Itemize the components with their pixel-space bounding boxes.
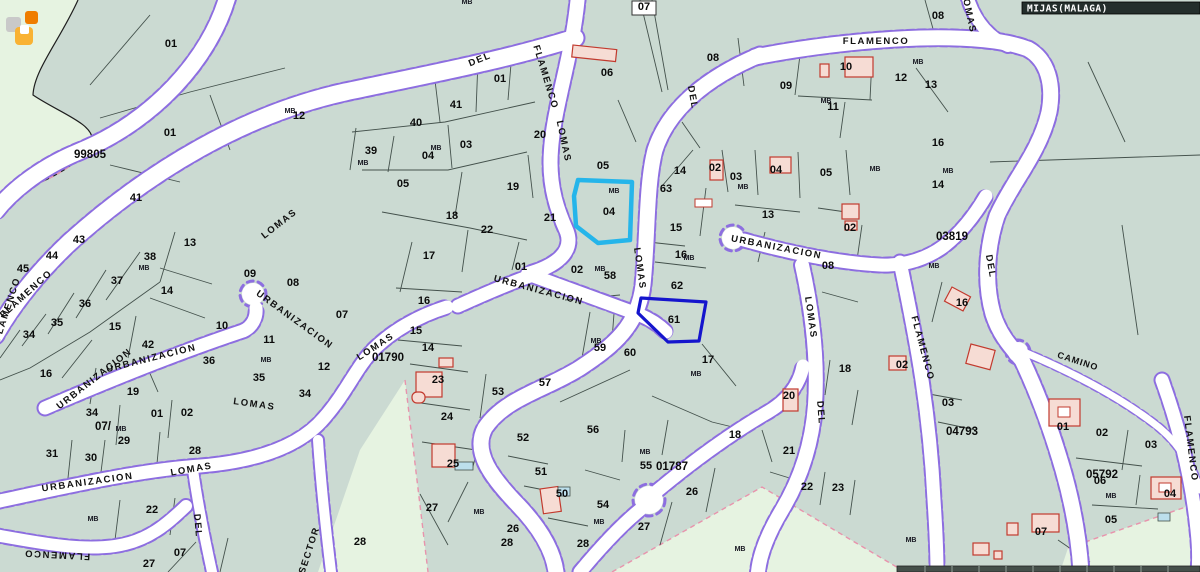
parcel-number: 41 (450, 99, 462, 111)
parcel-number: 02 (896, 359, 908, 371)
parcel-number: 26 (507, 523, 519, 535)
parcel-number: 27 (426, 502, 438, 514)
parcel-number: 22 (481, 224, 493, 236)
parcel-number: 36 (79, 298, 91, 310)
parcel-number: 44 (46, 250, 59, 262)
parcel-number: 34 (86, 407, 99, 419)
parcel-number: 28 (501, 537, 513, 549)
parcel-number: 01 (151, 408, 163, 420)
parcel-number: 15 (670, 222, 682, 234)
parcel-number: 18 (839, 363, 851, 375)
cadastral-map-canvas[interactable]: 0112014041390403052019182217162105040607… (0, 0, 1200, 572)
parcel-number: 16 (418, 295, 430, 307)
parcel-number: 63 (660, 183, 672, 195)
parcel-number: 61 (668, 314, 680, 326)
mb-label: MB (595, 266, 606, 273)
mb-label: MB (684, 255, 695, 262)
mb-label: MB (691, 371, 702, 378)
mb-label: MB (738, 184, 749, 191)
parcel-number: 01 (515, 261, 527, 273)
parcel-number: 37 (111, 275, 123, 287)
parcel-number: 39 (365, 145, 377, 157)
mb-label: MB (609, 188, 620, 195)
parcel-number: 27 (638, 521, 650, 533)
parcel-number: 07 (638, 1, 650, 13)
parcel-number: 17 (702, 354, 714, 366)
parcel-number: 16 (40, 368, 52, 380)
parcel-number: 35 (51, 317, 63, 329)
street-name: FLAMENCO (843, 36, 910, 47)
parcel-number: 45 (17, 263, 29, 275)
map-title-bar: MIJAS(MALAGA) (1022, 2, 1200, 15)
zone-code: 03819 (936, 231, 968, 243)
parcel-number: 11 (263, 334, 275, 346)
mb-label: MB (906, 537, 917, 544)
parcel-number: 02 (1096, 427, 1108, 439)
parcel-number: 58 (604, 270, 616, 282)
parcel-number: 23 (832, 482, 844, 494)
parcel-number: 21 (544, 212, 556, 224)
parcel-number: 35 (253, 372, 265, 384)
mb-label: MB (285, 108, 296, 115)
parcel-number: 15 (109, 321, 121, 333)
parcel-number: 51 (535, 466, 547, 478)
mb-label: MB (88, 516, 99, 523)
mb-label: MB (870, 166, 881, 173)
parcel-number: 03 (1145, 439, 1157, 451)
parcel-number: 13 (925, 79, 937, 91)
cul-de-sac (1008, 342, 1028, 362)
parcel-number: 14 (674, 165, 687, 177)
zone-code: 01787 (656, 461, 688, 473)
parcel-number: 07 (336, 309, 348, 321)
parcel-number: 22 (146, 504, 158, 516)
parcel-number: 50 (556, 488, 568, 500)
parcel-number: 08 (822, 260, 834, 272)
parcel-number: 56 (587, 424, 599, 436)
mb-label: MB (821, 98, 832, 105)
parcel-number: 21 (783, 445, 795, 457)
parcel-number: 19 (507, 181, 519, 193)
parcel-number: 02 (709, 162, 721, 174)
street-name: DEL (191, 513, 204, 538)
mb-label: MB (1106, 493, 1117, 500)
parcel-number: 01 (164, 127, 176, 139)
parcel-number: 16 (956, 297, 968, 309)
parcel-number: 34 (23, 329, 36, 341)
parcel-number: 25 (447, 458, 459, 470)
parcel-number: 04 (1164, 488, 1177, 500)
parcel-number: 13 (184, 237, 196, 249)
parcel-number: 14 (932, 179, 945, 191)
parcel-number: 41 (130, 192, 142, 204)
parcel-number: 17 (423, 250, 435, 262)
parcel-number: 60 (624, 347, 636, 359)
parcel-number: 28 (354, 536, 366, 548)
zone-code: 07/ (95, 421, 112, 433)
parcel-number: 28 (189, 445, 201, 457)
parcel-number: 12 (895, 72, 907, 84)
logo-orange-square (25, 11, 38, 24)
parcel-number: 23 (432, 374, 444, 386)
mb-label: MB (139, 265, 150, 272)
parcel-number: 12 (318, 361, 330, 373)
parcel-number: 04 (603, 206, 616, 218)
mb-label: MB (913, 59, 924, 66)
municipality-label: MIJAS(MALAGA) (1027, 4, 1108, 15)
parcel-number: 14 (161, 285, 174, 297)
parcel-number: 36 (203, 355, 215, 367)
parcel-number: 30 (85, 452, 97, 464)
mb-label: MB (591, 338, 602, 345)
zone-code: 04793 (946, 426, 978, 438)
parcel-number: 05 (1105, 514, 1117, 526)
parcel-number: 09 (780, 80, 792, 92)
parcel-number: 08 (707, 52, 719, 64)
parcel-number: 24 (441, 411, 454, 423)
parcel-number: 06 (601, 67, 613, 79)
parcel-number: 26 (686, 486, 698, 498)
parcel-number: 09 (244, 268, 256, 280)
parcel-number: 62 (671, 280, 683, 292)
parcel-number: 28 (577, 538, 589, 550)
parcel-number: 54 (597, 499, 610, 511)
parcel-number: 10 (840, 61, 852, 73)
parcel-number: 16 (932, 137, 944, 149)
parcel-number: 43 (73, 234, 85, 246)
parcel-number: 01 (1057, 421, 1069, 433)
mb-label: MB (943, 168, 954, 175)
parcel-number: 55 (640, 460, 652, 472)
mb-label: MB (929, 263, 940, 270)
parcel-number: 02 (844, 222, 856, 234)
mb-label: MB (358, 160, 369, 167)
parcel-number: 20 (783, 390, 795, 402)
parcel-number: 05 (597, 160, 609, 172)
parcel-number: 20 (534, 129, 546, 141)
parcel-number: 08 (932, 10, 944, 22)
parcel-number: 05 (397, 178, 409, 190)
mb-label: MB (462, 0, 473, 6)
parcel-number: 03 (942, 397, 954, 409)
parcel-number: 19 (127, 386, 139, 398)
parcel-number: 01 (165, 38, 177, 50)
parcel-number: 02 (181, 407, 193, 419)
parcel-number: 22 (801, 481, 813, 493)
parcel-number: 53 (492, 386, 504, 398)
mb-label: MB (594, 519, 605, 526)
logo-white-square (20, 25, 29, 34)
parcel-number: 38 (144, 251, 156, 263)
parcel-number: 08 (287, 277, 299, 289)
parcel-number: 04 (770, 164, 783, 176)
zone-code: 01790 (372, 352, 404, 364)
scale-strip (897, 566, 1200, 572)
parcel-number: 07 (1035, 526, 1047, 538)
parcel-number: 18 (729, 429, 741, 441)
mb-label: MB (735, 546, 746, 553)
parcel-number: 42 (142, 339, 154, 351)
mb-label: MB (431, 145, 442, 152)
zone-code: 99805 (74, 149, 107, 161)
parcel-number: 31 (46, 448, 58, 460)
mb-label: MB (261, 357, 272, 364)
zone-code: 05792 (1086, 469, 1118, 481)
parcel-number: 14 (422, 342, 435, 354)
parcel-number: 40 (410, 117, 422, 129)
parcel-number: 52 (517, 432, 529, 444)
parcel-number: 27 (143, 558, 155, 570)
mb-label: MB (640, 449, 651, 456)
parcel-number: 07 (174, 547, 186, 559)
cul-de-sac (635, 486, 663, 514)
street-name: DEL (814, 401, 827, 426)
mb-label: MB (474, 509, 485, 516)
parcel-number: 29 (118, 435, 130, 447)
parcel-number: 13 (762, 209, 774, 221)
parcel-number: 05 (820, 167, 832, 179)
parcel-number: 10 (216, 320, 228, 332)
cadastral-map-viewer: 0112014041390403052019182217162105040607… (0, 0, 1200, 572)
parcel-number: 03 (460, 139, 472, 151)
mb-label: MB (116, 426, 127, 433)
parcel-number: 02 (571, 264, 583, 276)
parcel-number: 18 (446, 210, 458, 222)
parcel-number: 57 (539, 377, 551, 389)
parcel-number: 01 (494, 73, 506, 85)
parcel-number: 34 (299, 388, 312, 400)
parcel-number: 15 (410, 325, 422, 337)
parcel-number: 03 (730, 171, 742, 183)
